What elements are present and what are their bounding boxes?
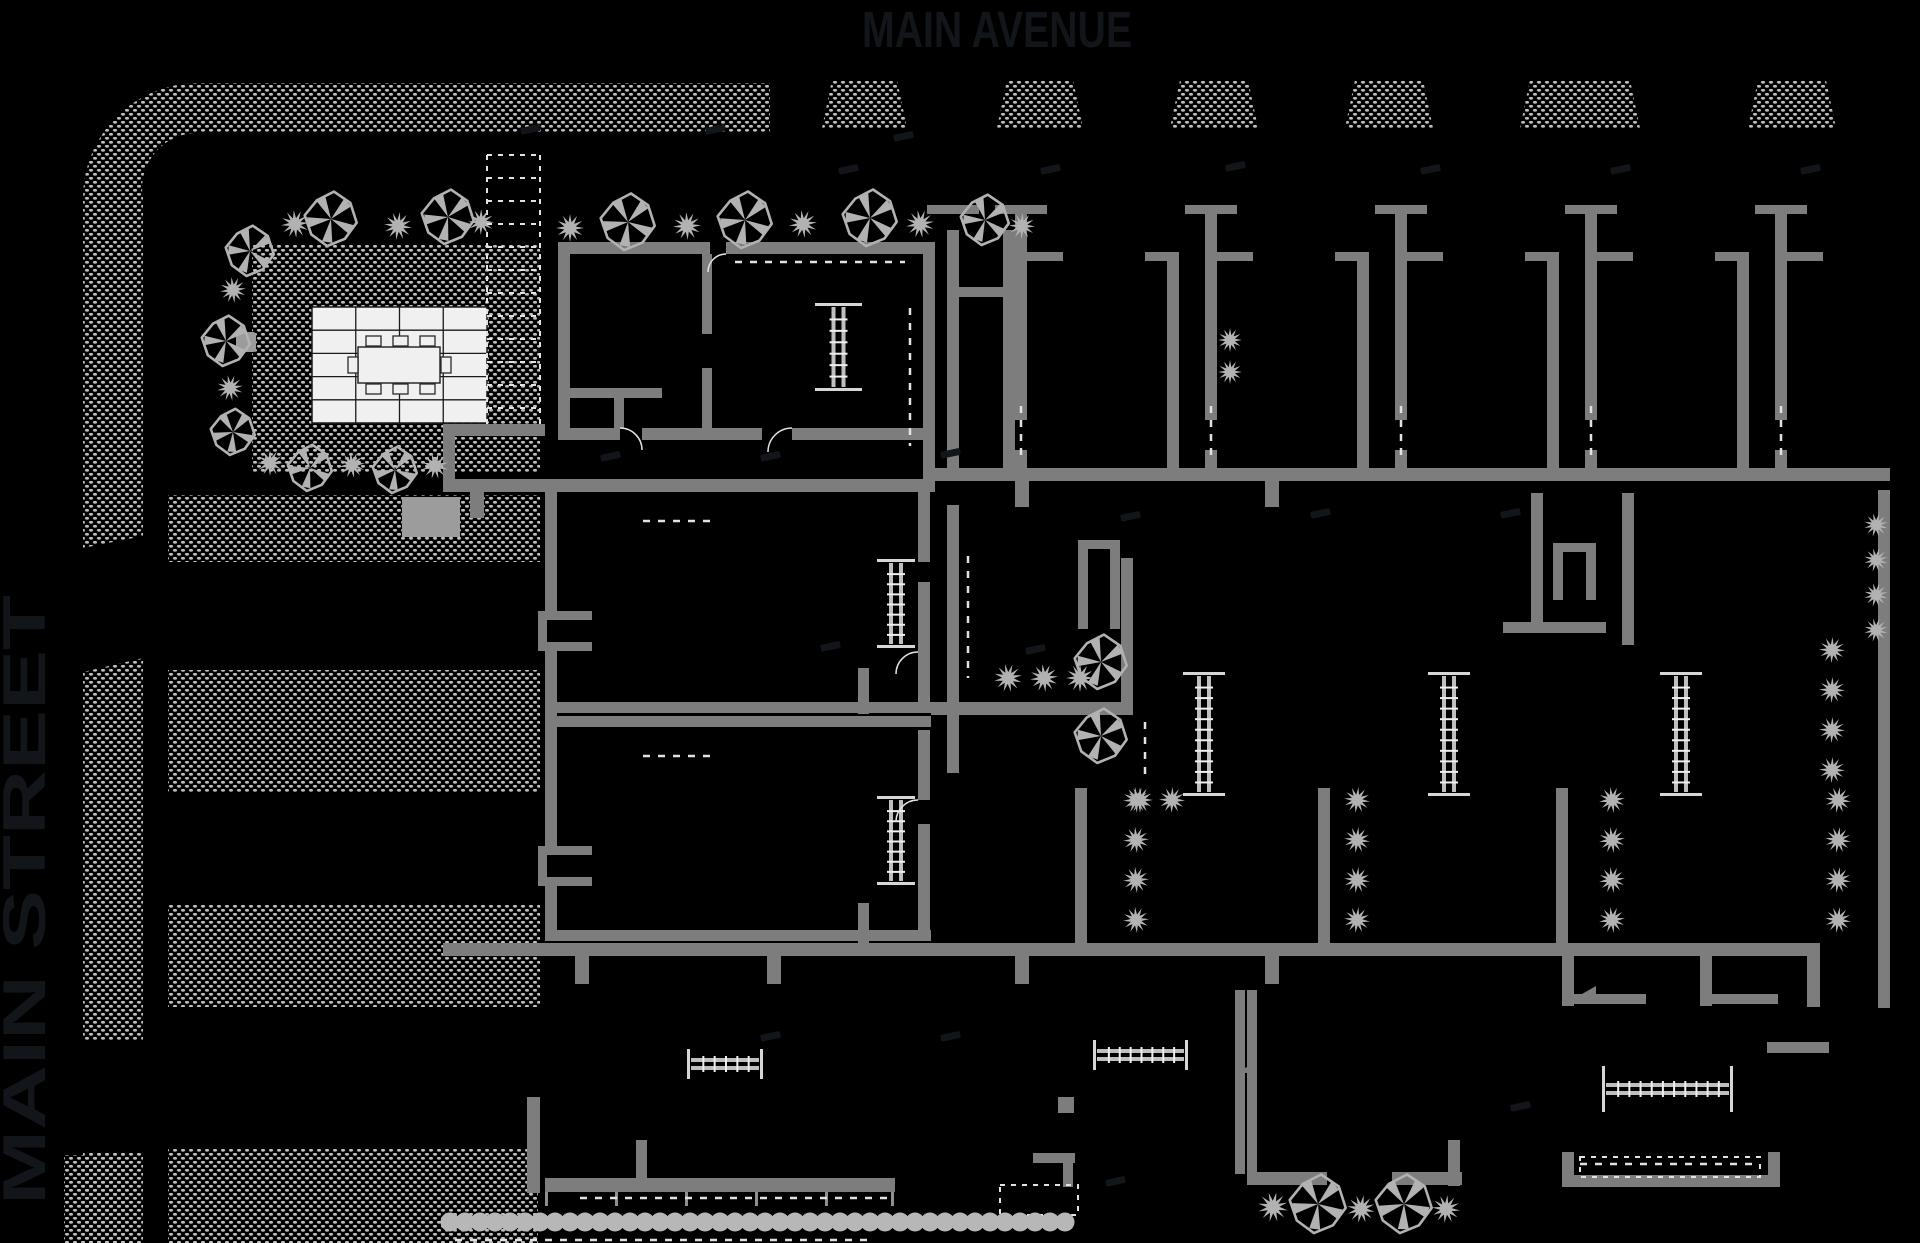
wall-stub bbox=[1265, 481, 1279, 507]
curb-cut-apron bbox=[1345, 80, 1433, 128]
wall bbox=[1003, 230, 1015, 480]
wall bbox=[858, 668, 869, 714]
wall bbox=[1063, 1153, 1073, 1187]
wall-stub bbox=[767, 956, 781, 984]
curb-cut-apron bbox=[1748, 80, 1836, 128]
wall bbox=[1565, 205, 1617, 214]
wall bbox=[1503, 622, 1606, 633]
chair bbox=[366, 384, 381, 394]
wall bbox=[1407, 252, 1443, 261]
sidewalk-strip bbox=[83, 658, 143, 1040]
wall bbox=[927, 205, 979, 214]
wall bbox=[538, 642, 592, 651]
paving-tick bbox=[891, 1192, 894, 1206]
wall bbox=[959, 287, 1003, 297]
wall bbox=[545, 886, 557, 932]
wall bbox=[1027, 252, 1063, 261]
chair bbox=[366, 336, 381, 346]
wall bbox=[1525, 252, 1559, 261]
wall bbox=[1375, 205, 1427, 214]
wall bbox=[1775, 242, 1787, 420]
wall bbox=[1121, 558, 1133, 702]
wall bbox=[558, 242, 710, 254]
wall bbox=[642, 428, 762, 440]
wall bbox=[443, 424, 545, 436]
wall bbox=[1335, 252, 1369, 261]
wall bbox=[558, 428, 620, 440]
wall bbox=[545, 1178, 895, 1192]
wall bbox=[1553, 552, 1563, 600]
wall bbox=[1205, 468, 1357, 480]
wall bbox=[1585, 242, 1597, 420]
wall bbox=[1737, 257, 1749, 480]
chair bbox=[420, 336, 435, 346]
wall bbox=[1807, 943, 1820, 1007]
wall-stub bbox=[1015, 481, 1029, 507]
wall bbox=[1217, 252, 1253, 261]
wall bbox=[545, 716, 931, 727]
curb-cut-apron bbox=[1520, 80, 1640, 128]
sidewalk-panel bbox=[168, 670, 540, 792]
wall bbox=[1015, 468, 1167, 480]
sidewalk-strip bbox=[64, 1155, 127, 1243]
wall bbox=[545, 492, 557, 612]
street-label-main-avenue: MAIN AVENUE bbox=[862, 1, 1132, 58]
wall bbox=[1110, 549, 1120, 629]
wall bbox=[1878, 490, 1890, 1008]
wall bbox=[726, 242, 935, 254]
wall bbox=[1787, 252, 1823, 261]
wall-stub bbox=[575, 956, 589, 984]
street-label-main-street: MAIN STREET bbox=[0, 595, 58, 1205]
wall bbox=[558, 254, 570, 440]
wall bbox=[545, 650, 557, 848]
wall bbox=[1395, 242, 1407, 420]
wall bbox=[1547, 257, 1559, 480]
wall bbox=[545, 702, 931, 713]
wall bbox=[1700, 956, 1712, 1006]
wall bbox=[1075, 788, 1087, 945]
sidewalk-panel bbox=[168, 495, 540, 562]
curb-cut-apron bbox=[997, 80, 1083, 128]
wall bbox=[443, 479, 935, 492]
wall bbox=[545, 930, 931, 941]
wall bbox=[1755, 205, 1807, 214]
wall bbox=[792, 428, 923, 440]
planter-box bbox=[402, 497, 460, 537]
wall bbox=[1448, 1140, 1460, 1186]
wall bbox=[1247, 990, 1257, 1174]
chair bbox=[441, 357, 451, 373]
wall bbox=[1622, 493, 1634, 645]
wall bbox=[1767, 1042, 1829, 1053]
site-plan-svg: MAIN AVENUE MAIN STREET bbox=[0, 0, 1920, 1243]
wall bbox=[1235, 990, 1245, 1174]
wall bbox=[1145, 252, 1179, 261]
wall bbox=[1715, 252, 1749, 261]
wall bbox=[1556, 788, 1568, 945]
wall bbox=[918, 492, 930, 562]
wall bbox=[1078, 549, 1088, 629]
wall bbox=[1167, 257, 1179, 480]
wall-stub bbox=[1265, 956, 1279, 984]
chair bbox=[393, 336, 408, 346]
wall bbox=[1078, 540, 1120, 549]
wall bbox=[1597, 252, 1633, 261]
wall-stub bbox=[1015, 956, 1029, 984]
wall bbox=[1775, 468, 1878, 480]
wall bbox=[918, 582, 930, 702]
chair bbox=[348, 357, 358, 373]
wall bbox=[1318, 788, 1330, 945]
paving-tick bbox=[545, 1192, 548, 1206]
wall bbox=[923, 242, 935, 482]
wall bbox=[947, 230, 959, 480]
wall bbox=[443, 943, 1807, 956]
wall bbox=[1395, 468, 1547, 480]
wall bbox=[570, 388, 662, 398]
wall bbox=[1553, 543, 1596, 552]
chair bbox=[420, 384, 435, 394]
wall bbox=[614, 398, 624, 428]
wall bbox=[538, 877, 592, 886]
dining-table bbox=[358, 347, 440, 383]
wall bbox=[1586, 552, 1596, 600]
wall bbox=[1185, 205, 1237, 214]
wall bbox=[1357, 257, 1369, 480]
wall bbox=[1712, 994, 1778, 1004]
wall bbox=[1015, 242, 1027, 420]
wall bbox=[918, 730, 930, 800]
wall bbox=[702, 254, 712, 334]
chair bbox=[393, 384, 408, 394]
wall bbox=[918, 824, 930, 930]
wall bbox=[947, 505, 959, 773]
wall bbox=[858, 903, 869, 943]
wall bbox=[1058, 1097, 1074, 1113]
hedge-scallop bbox=[1056, 1213, 1075, 1232]
wall bbox=[636, 1140, 647, 1180]
wall bbox=[1585, 468, 1737, 480]
wall-stub bbox=[470, 492, 484, 518]
paving-tick bbox=[755, 1192, 758, 1206]
curb-cut-apron bbox=[822, 80, 907, 128]
wall bbox=[1768, 1152, 1780, 1187]
site-plan-page: MAIN AVENUE MAIN STREET bbox=[0, 0, 1920, 1243]
wall bbox=[1205, 242, 1217, 420]
curb-cut-apron bbox=[1170, 80, 1258, 128]
wall bbox=[702, 368, 712, 428]
wall bbox=[1531, 493, 1543, 633]
wall bbox=[527, 1097, 540, 1193]
wall bbox=[1562, 956, 1574, 1006]
